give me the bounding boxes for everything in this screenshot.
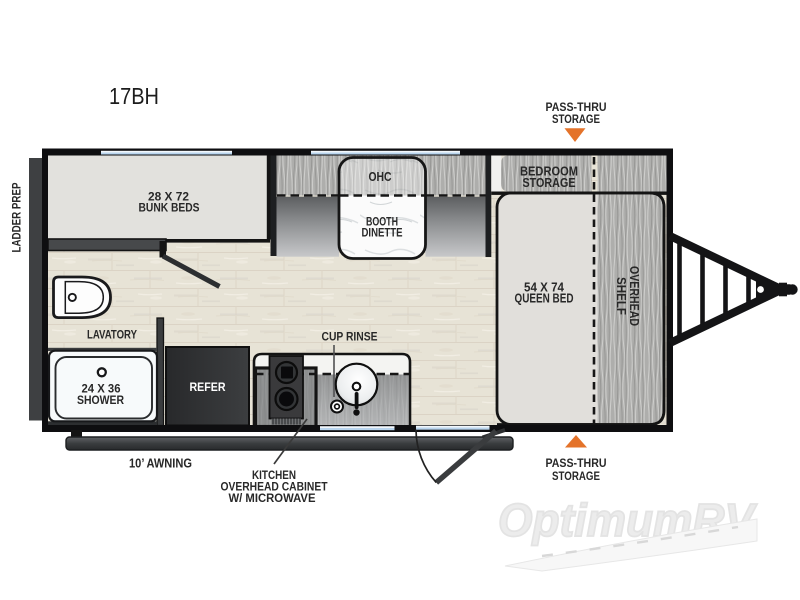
svg-text:QUEEN BED: QUEEN BED: [515, 291, 574, 306]
svg-text:W/ MICROWAVE: W/ MICROWAVE: [229, 491, 316, 505]
svg-text:LADDER PREP: LADDER PREP: [12, 182, 24, 252]
svg-text:CUP RINSE: CUP RINSE: [322, 330, 378, 344]
svg-text:STORAGE: STORAGE: [552, 112, 600, 126]
svg-text:SHELF: SHELF: [614, 277, 628, 315]
svg-text:10’ AWNING: 10’ AWNING: [129, 457, 192, 471]
svg-text:STORAGE: STORAGE: [523, 176, 576, 190]
svg-text:OHC: OHC: [369, 170, 392, 184]
svg-text:LAVATORY: LAVATORY: [87, 328, 137, 342]
svg-text:OVERHEAD: OVERHEAD: [627, 266, 641, 326]
svg-text:BUNK BEDS: BUNK BEDS: [139, 201, 200, 215]
svg-text:REFER: REFER: [190, 382, 227, 394]
svg-text:DINETTE: DINETTE: [362, 227, 403, 239]
svg-text:17BH: 17BH: [109, 83, 159, 109]
svg-text:STORAGE: STORAGE: [552, 469, 600, 483]
svg-text:SHOWER: SHOWER: [77, 393, 124, 407]
